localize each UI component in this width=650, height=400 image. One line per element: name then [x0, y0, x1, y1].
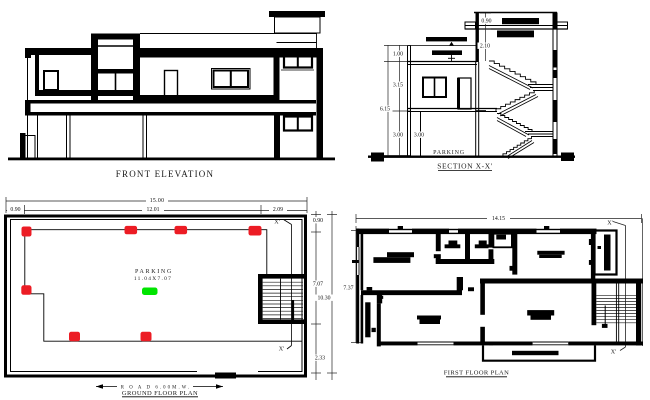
svg-text:7.07: 7.07	[313, 282, 323, 288]
svg-text:X': X'	[274, 220, 279, 226]
svg-text:FRONT ELEVATION: FRONT ELEVATION	[116, 169, 214, 179]
svg-text:15.00: 15.00	[150, 198, 165, 204]
svg-text:X': X'	[607, 221, 612, 227]
svg-text:PARKING: PARKING	[433, 150, 465, 156]
svg-text:3.00: 3.00	[393, 133, 403, 139]
svg-text:1.00: 1.00	[393, 52, 403, 58]
svg-text:11.04X7.07: 11.04X7.07	[134, 276, 172, 282]
svg-text:12.01: 12.01	[146, 207, 159, 213]
svg-text:2.33: 2.33	[315, 356, 325, 362]
svg-text:X': X'	[279, 347, 284, 353]
svg-text:3.00: 3.00	[414, 133, 424, 139]
svg-text:GROUND FLOOR PLAN: GROUND FLOOR PLAN	[122, 390, 198, 397]
svg-text:2.10: 2.10	[480, 44, 490, 50]
svg-text:14.15: 14.15	[492, 216, 505, 222]
svg-text:FIRST FLOOR PLAN: FIRST FLOOR PLAN	[444, 370, 510, 377]
svg-text:3.15: 3.15	[393, 83, 403, 89]
svg-text:0.90: 0.90	[481, 19, 491, 25]
svg-text:2.09: 2.09	[273, 207, 283, 213]
svg-text:0.90: 0.90	[10, 207, 20, 213]
svg-text:SECTION X-X': SECTION X-X'	[437, 162, 492, 171]
svg-text:PARKING: PARKING	[135, 269, 173, 275]
svg-text:7.37: 7.37	[343, 286, 353, 292]
svg-text:10.30: 10.30	[317, 296, 330, 302]
svg-text:X': X'	[611, 350, 616, 356]
svg-text:0.90: 0.90	[313, 218, 323, 224]
svg-text:6.15: 6.15	[380, 107, 390, 113]
